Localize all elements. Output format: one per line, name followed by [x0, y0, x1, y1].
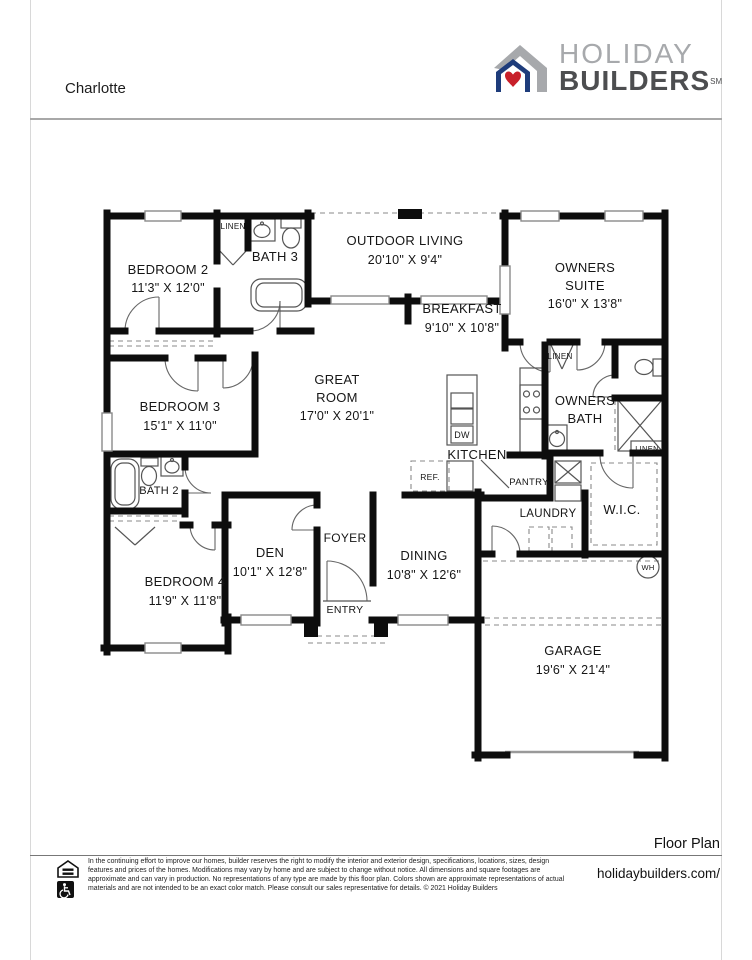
room-label-owners-bath-1: OWNERS [555, 393, 615, 408]
room-label-garage: GARAGE [544, 643, 601, 658]
website-text: holidaybuilders.com/ [570, 866, 720, 881]
room-dims-outdoor-living: 20'10" X 9'4" [368, 253, 443, 267]
floor-plan: BEDROOM 2 11'3" X 12'0" BATH 3 OUTDOOR L… [95, 193, 670, 768]
room-label-owners-bath-2: BATH [568, 411, 603, 426]
room-dims-owners-suite: 16'0" X 13'8" [548, 297, 623, 311]
room-dims-bedroom-2: 11'3" X 12'0" [131, 281, 205, 295]
page-left-border [30, 0, 31, 960]
room-dims-dining: 10'8" X 12'6" [387, 568, 462, 582]
room-label-bath-2: BATH 2 [139, 485, 179, 497]
room-label-kitchen: KITCHEN [447, 447, 506, 462]
room-label-bath-3: BATH 3 [252, 249, 298, 264]
room-label-great-room-2: ROOM [316, 390, 358, 405]
room-label-dining: DINING [400, 548, 447, 563]
room-label-outdoor-living: OUTDOOR LIVING [347, 233, 464, 248]
logo-word-builders-text: BUILDERS [559, 65, 710, 96]
logo-word-holiday: HOLIDAY [559, 40, 722, 67]
room-dims-garage: 19'6" X 21'4" [536, 663, 611, 677]
room-label-wic: W.I.C. [603, 502, 640, 517]
room-label-bedroom-4: BEDROOM 4 [145, 574, 226, 589]
room-label-entry: ENTRY [327, 604, 364, 616]
room-label-owners-suite-2: SUITE [565, 278, 605, 293]
accessibility-icon [57, 881, 74, 898]
room-label-great-room-1: GREAT [314, 372, 359, 387]
room-label-den: DEN [256, 545, 284, 560]
footer-divider [30, 855, 722, 856]
logo-house-icon [492, 41, 550, 95]
label-linen-hall: LINEN [220, 222, 245, 231]
logo-trademark: SM [710, 77, 722, 86]
room-dims-bedroom-3: 15'1" X 11'0" [143, 419, 217, 433]
footer-icons [57, 860, 81, 901]
logo-word-builders: BUILDERSSM [559, 67, 722, 95]
equal-housing-icon [57, 860, 79, 878]
label-linen-bath: LINEN [635, 444, 659, 453]
holiday-builders-logo: HOLIDAY BUILDERSSM [492, 40, 722, 95]
plan-name: Charlotte [65, 80, 126, 97]
room-label-laundry: LAUNDRY [520, 508, 577, 520]
room-label-pantry: PANTRY [509, 477, 549, 488]
header-divider [30, 118, 722, 120]
floor-plan-caption: Floor Plan [560, 836, 720, 852]
label-linen-owners: LINEN [547, 352, 572, 361]
label-wh: WH [641, 563, 654, 572]
room-dims-breakfast: 9'10" X 10'8" [425, 321, 500, 335]
room-dims-den: 10'1" X 12'8" [233, 565, 308, 579]
room-label-breakfast: BREAKFAST [422, 301, 501, 316]
disclaimer-text: In the continuing effort to improve our … [88, 858, 566, 894]
room-label-bedroom-3: BEDROOM 3 [140, 399, 221, 414]
label-ref: REF. [420, 472, 440, 482]
room-label-bedroom-2: BEDROOM 2 [128, 262, 209, 277]
page-right-border [721, 0, 722, 960]
room-dims-bedroom-4: 11'9" X 11'8" [149, 594, 222, 608]
label-dw: DW [454, 430, 470, 440]
page: Charlotte HOLIDAY BUILDERSSM [0, 0, 752, 960]
room-dims-great-room: 17'0" X 20'1" [300, 409, 375, 423]
room-label-foyer: FOYER [324, 531, 367, 545]
logo-wordmark: HOLIDAY BUILDERSSM [559, 40, 722, 95]
room-label-owners-suite-1: OWNERS [555, 260, 615, 275]
